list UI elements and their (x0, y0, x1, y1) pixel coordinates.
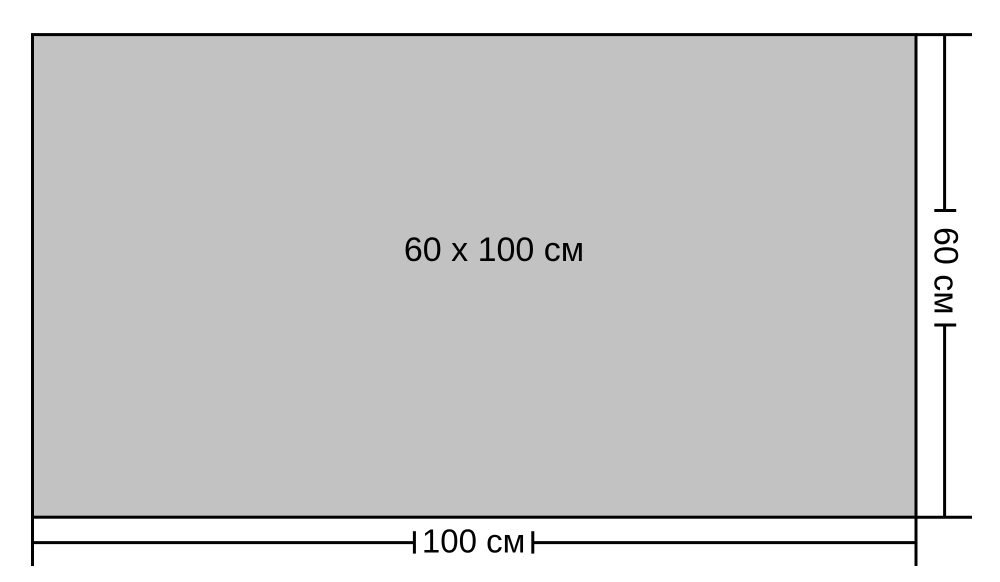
svg-text:60 x 100 см: 60 x 100 см (404, 231, 584, 269)
svg-text:60 см: 60 см (927, 227, 965, 315)
svg-text:100 см: 100 см (422, 523, 525, 560)
